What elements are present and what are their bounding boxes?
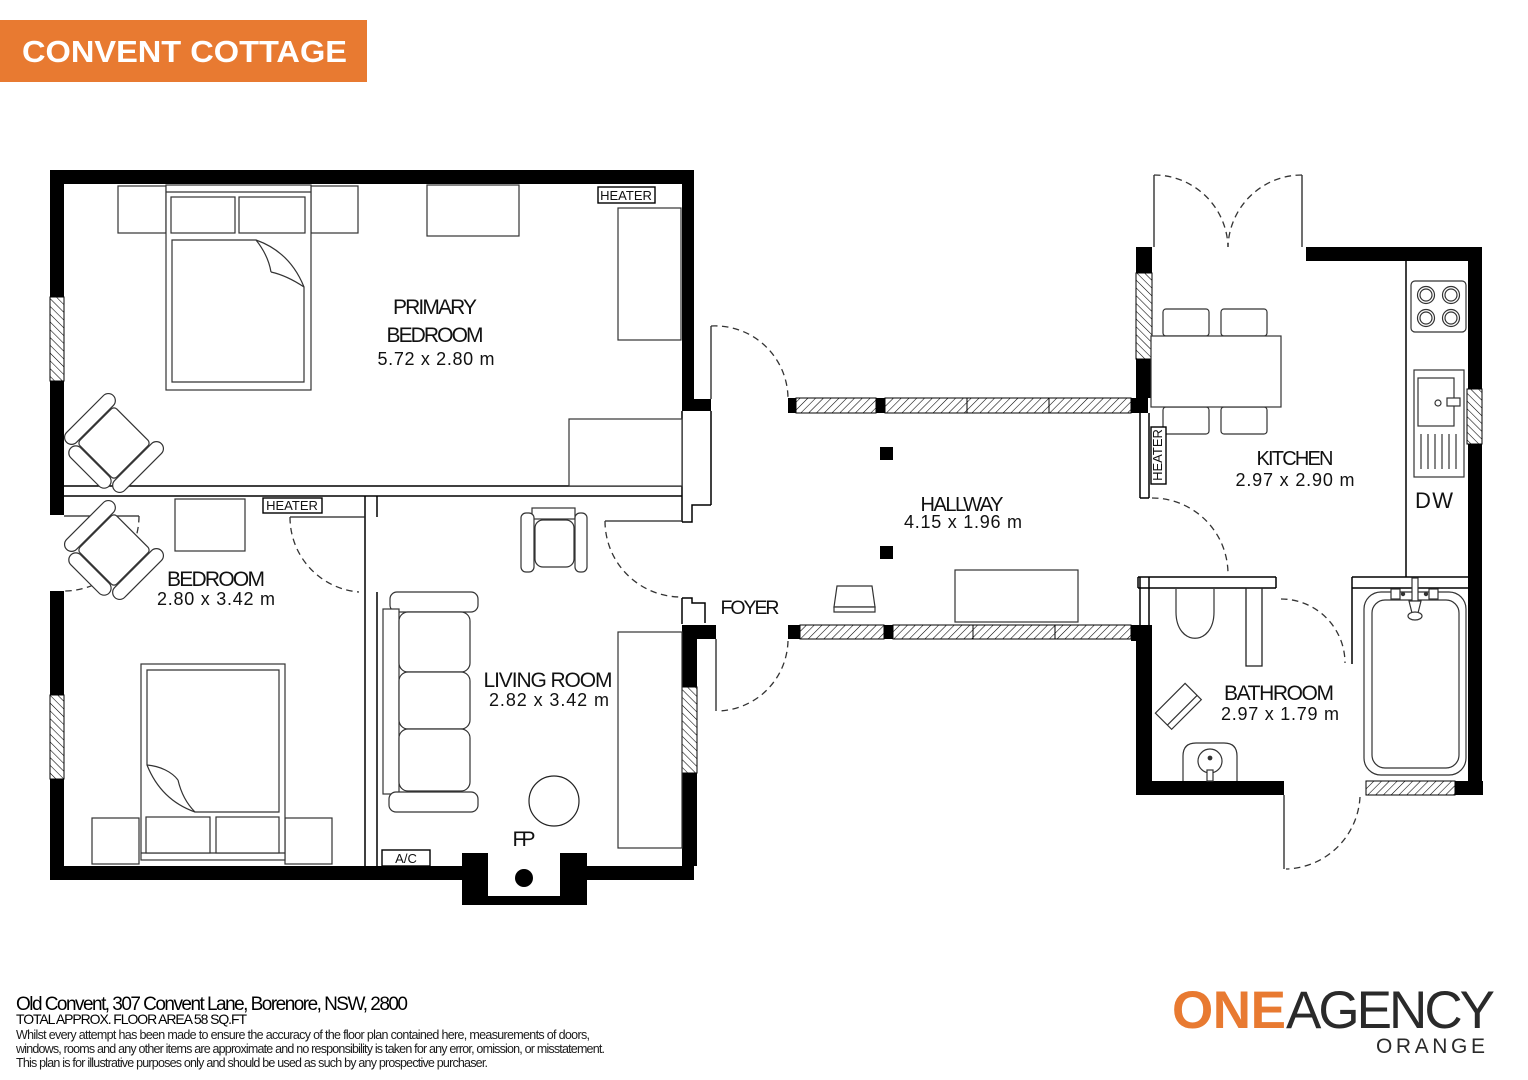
- svg-text:A/C: A/C: [395, 851, 417, 866]
- svg-text:KITCHEN: KITCHEN: [1257, 448, 1334, 470]
- svg-text:ONE: ONE: [1172, 981, 1286, 1040]
- svg-text:HEATER: HEATER: [600, 188, 652, 203]
- svg-text:BEDROOM: BEDROOM: [387, 324, 484, 347]
- svg-text:PRIMARY: PRIMARY: [393, 296, 477, 319]
- svg-text:2.82 x 3.42 m: 2.82 x 3.42 m: [489, 690, 609, 710]
- svg-text:2.97 x 2.90 m: 2.97 x 2.90 m: [1236, 470, 1355, 490]
- svg-text:This plan is for illustrative: This plan is for illustrative purposes o…: [16, 1056, 488, 1070]
- svg-text:BATHROOM: BATHROOM: [1224, 682, 1334, 705]
- svg-text:AGENCY: AGENCY: [1286, 981, 1495, 1040]
- svg-text:LIVING ROOM: LIVING ROOM: [484, 669, 613, 692]
- svg-text:2.80 x 3.42 m: 2.80 x 3.42 m: [157, 589, 275, 609]
- svg-text:Whilst every attempt has been: Whilst every attempt has been made to en…: [16, 1028, 590, 1042]
- svg-text:FOYER: FOYER: [721, 597, 780, 619]
- svg-text:HEATER: HEATER: [266, 498, 318, 513]
- svg-text:CONVENT COTTAGE: CONVENT COTTAGE: [22, 34, 347, 69]
- svg-text:windows, rooms and any other i: windows, rooms and any other items are a…: [15, 1042, 605, 1056]
- svg-text:BEDROOM: BEDROOM: [167, 568, 265, 591]
- svg-text:5.72 x 2.80 m: 5.72 x 2.80 m: [378, 349, 495, 369]
- svg-text:2.97 x 1.79 m: 2.97 x 1.79 m: [1221, 704, 1339, 724]
- svg-text:4.15 x 1.96 m: 4.15 x 1.96 m: [904, 512, 1022, 532]
- svg-text:FP: FP: [513, 828, 536, 851]
- svg-text:TOTAL APPROX. FLOOR AREA 58 SQ: TOTAL APPROX. FLOOR AREA 58 SQ.FT: [16, 1011, 247, 1027]
- svg-text:HEATER: HEATER: [1150, 429, 1165, 481]
- svg-text:DW: DW: [1415, 488, 1453, 513]
